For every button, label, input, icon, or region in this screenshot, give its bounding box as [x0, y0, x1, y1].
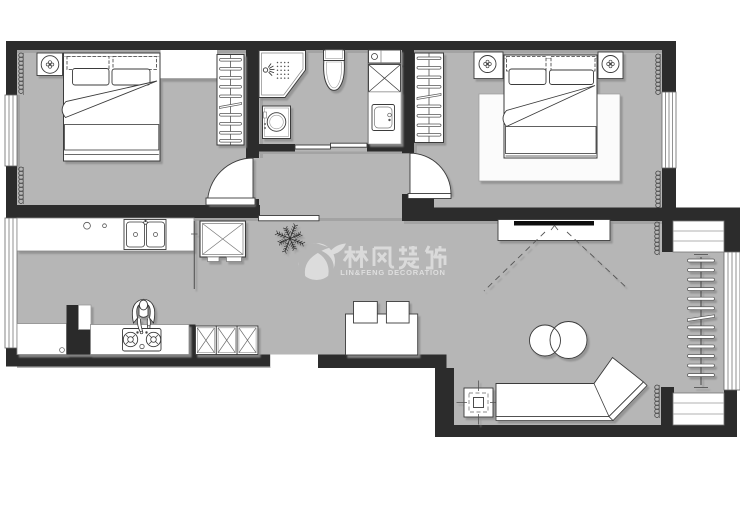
svg-text:LIN&FENG DECORATION: LIN&FENG DECORATION	[340, 268, 445, 277]
